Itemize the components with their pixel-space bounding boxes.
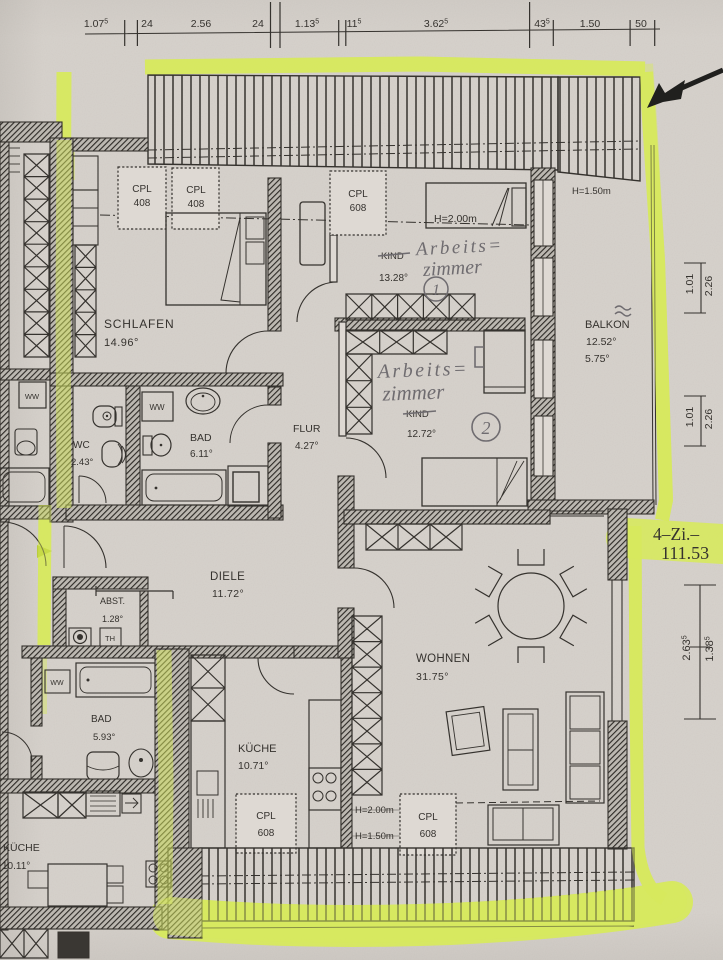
svg-text:2.56: 2.56 [191, 18, 212, 30]
svg-text:5.75°: 5.75° [585, 353, 610, 365]
svg-text:WOHNEN: WOHNEN [416, 653, 470, 665]
svg-text:11.72°: 11.72° [212, 588, 244, 600]
svg-text:DIELE: DIELE [210, 571, 245, 583]
svg-text:408: 408 [134, 198, 151, 209]
svg-text:608: 608 [350, 203, 367, 214]
svg-text:BALKON: BALKON [585, 319, 630, 331]
svg-text:1.50: 1.50 [580, 18, 601, 30]
svg-text:1.01: 1.01 [684, 274, 696, 295]
svg-text:WC: WC [73, 440, 90, 451]
svg-text:5.93°: 5.93° [93, 732, 115, 743]
svg-text:2.43°: 2.43° [71, 457, 93, 468]
svg-text:KÜCHE: KÜCHE [3, 842, 40, 854]
svg-text:1: 1 [432, 282, 440, 299]
svg-text:FLUR: FLUR [293, 423, 321, 435]
svg-text:4.27°: 4.27° [295, 441, 318, 452]
svg-text:10.71°: 10.71° [238, 760, 268, 772]
svg-text:ABST.: ABST. [100, 596, 125, 606]
svg-text:CPL: CPL [132, 184, 152, 195]
svg-text:H=2.00m: H=2.00m [355, 805, 394, 816]
svg-text:Arbeits=: Arbeits= [375, 358, 469, 383]
svg-text:zimmer: zimmer [381, 379, 445, 405]
svg-text:408: 408 [188, 199, 205, 210]
svg-text:2.26: 2.26 [703, 409, 715, 430]
svg-text:BAD: BAD [91, 714, 112, 725]
svg-text:KÜCHE: KÜCHE [238, 743, 277, 755]
svg-text:12.72°: 12.72° [407, 429, 436, 440]
svg-text:1.01: 1.01 [684, 407, 696, 428]
svg-text:CPL: CPL [348, 189, 368, 200]
svg-text:608: 608 [420, 829, 437, 840]
svg-text:H=2.00m: H=2.00m [434, 213, 477, 225]
svg-text:CPL: CPL [186, 185, 206, 196]
svg-text:1.28°: 1.28° [102, 614, 124, 624]
svg-text:zimmer: zimmer [421, 256, 482, 281]
svg-text:6.11°: 6.11° [190, 449, 213, 460]
svg-text:BAD: BAD [190, 432, 212, 444]
svg-text:H=1.50m: H=1.50m [572, 186, 611, 197]
svg-text:TH: TH [105, 634, 115, 643]
svg-text:24: 24 [252, 18, 264, 30]
svg-text:111.53: 111.53 [661, 543, 709, 563]
svg-text:13.28°: 13.28° [379, 273, 408, 284]
svg-text:WW: WW [50, 680, 64, 687]
svg-text:608: 608 [258, 828, 275, 839]
svg-text:CPL: CPL [418, 812, 438, 823]
svg-text:SCHLAFEN: SCHLAFEN [104, 317, 174, 331]
svg-text:4–Zi.–: 4–Zi.– [653, 524, 699, 544]
svg-text:10.11°: 10.11° [2, 861, 30, 872]
svg-text:31.75°: 31.75° [416, 671, 449, 683]
svg-text:14.96°: 14.96° [104, 337, 139, 349]
svg-text:24: 24 [141, 18, 153, 30]
svg-text:H=1.50m: H=1.50m [355, 831, 394, 842]
svg-text:WW: WW [149, 403, 165, 412]
svg-text:12.52°: 12.52° [586, 336, 616, 348]
svg-text:CPL: CPL [256, 811, 276, 822]
svg-text:KIND: KIND [381, 251, 404, 262]
svg-text:2: 2 [482, 418, 491, 438]
svg-text:WW: WW [25, 392, 40, 401]
svg-text:2.26: 2.26 [703, 276, 715, 297]
svg-text:50: 50 [635, 18, 647, 30]
svg-text:KIND: KIND [406, 409, 429, 420]
